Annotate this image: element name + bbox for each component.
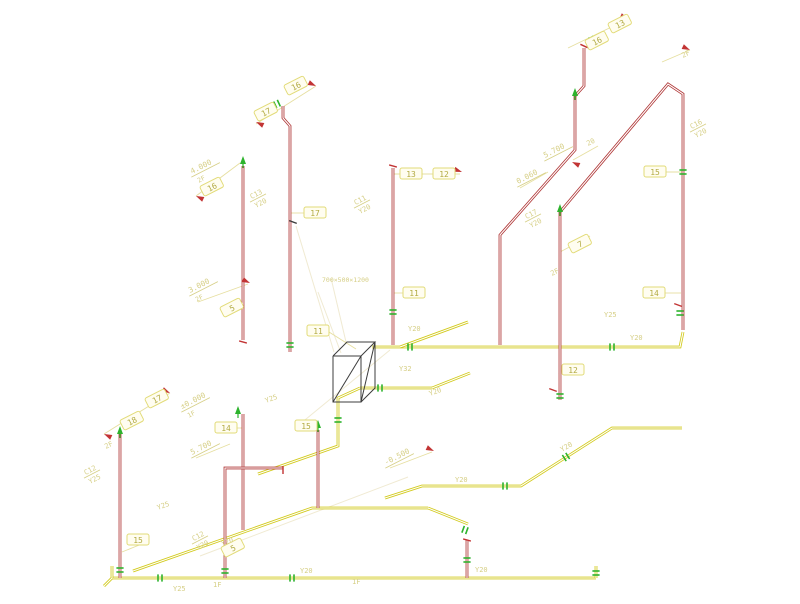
numbered-label: 18: [119, 411, 144, 431]
pipe-size-label: 20: [585, 137, 596, 148]
pipe-size-label: Y20: [455, 476, 468, 484]
pipe-size-label: Y20: [300, 567, 313, 575]
numbered-label: 17: [253, 102, 278, 122]
numbered-label: 17: [304, 207, 326, 218]
numbered-label-text: 15: [133, 536, 143, 545]
numbered-label: 7: [567, 234, 592, 254]
water-main-pipe-core: [432, 373, 470, 388]
pipe-size-label: Y20: [630, 334, 643, 342]
pipe-size-label: Y20: [408, 325, 421, 333]
elevation-mark: ±0.0001F: [177, 389, 215, 421]
end-tick: [389, 165, 397, 167]
pipe-size-label: Y25: [173, 585, 186, 593]
leader-arrow-icon: [308, 80, 317, 88]
elevation-value: 4.000: [189, 157, 214, 175]
elevation-sub: 2F: [194, 293, 205, 304]
water-main-pipe-core: [428, 508, 468, 524]
numbered-label-text: 13: [406, 170, 416, 179]
water-main-pipe-segment: [133, 508, 428, 571]
elevation-value: 0.060: [515, 167, 540, 185]
numbered-label: 5: [219, 298, 244, 318]
numbered-label: 16: [283, 76, 308, 96]
water-main-pipe-core: [133, 508, 428, 571]
riser-pipe-segment: [225, 468, 283, 578]
flow-arrow-icon: [240, 156, 246, 168]
numbered-label: 13: [400, 168, 422, 179]
piping-axonometric-svg: 700×500×12001716171613121111151471214181…: [0, 0, 800, 600]
numbered-label: 15: [127, 534, 149, 545]
end-ticks: [239, 44, 682, 541]
water-main-pipe-core: [385, 428, 682, 498]
flow-arrow-head: [240, 156, 246, 164]
numbered-label-text: 14: [649, 289, 659, 298]
numbered-label-text: 15: [301, 422, 311, 431]
valve-bar: [462, 526, 464, 533]
numbered-label: 11: [403, 287, 425, 298]
equipment-note: 700×500×1200: [322, 276, 369, 284]
riser-tag: C17Y20: [521, 207, 545, 231]
valve-icon: [462, 526, 468, 534]
water-main-pipe-segment: [385, 428, 682, 498]
pipe-size-label: Y25: [156, 500, 171, 512]
pipe-size-label: Y25: [604, 311, 617, 319]
numbered-label-text: 11: [313, 327, 323, 336]
riser-tag: C12Y25: [80, 463, 104, 487]
floor-mark: 1F: [213, 581, 221, 589]
numbered-label-text: 12: [568, 366, 578, 375]
elevation-sub: 1F: [186, 409, 197, 420]
numbered-label: 14: [215, 422, 237, 433]
numbered-label: 12: [562, 364, 584, 375]
end-tick: [239, 341, 247, 343]
leader-arrow-icon: [195, 194, 204, 202]
elevation-value: 5.700: [542, 141, 567, 159]
riser-pipe: [120, 48, 683, 578]
flow-arrow-icon: [557, 204, 563, 216]
riser-tag: C16Y20: [686, 117, 710, 141]
flow-arrow-head: [117, 426, 123, 434]
numbered-label: 15: [644, 166, 666, 177]
numbered-label-text: 15: [650, 168, 660, 177]
flow-arrow-icon: [235, 406, 241, 418]
riser-pipe-segment: [575, 48, 584, 96]
water-main-pipe-core: [104, 578, 112, 586]
floor-mark: 2F: [103, 440, 114, 451]
riser-tags: C13Y20C11Y20C17Y20C16Y20C12Y20C12Y25: [80, 117, 710, 553]
elevation-sub: 2F: [196, 174, 207, 185]
numbered-label-text: 11: [409, 289, 419, 298]
numbered-label: 11: [307, 325, 329, 336]
numbered-label-text: 12: [439, 170, 449, 179]
riser-pipe-segment: [283, 106, 290, 352]
valves: [116, 36, 686, 582]
pipe-size-label: Y20: [559, 440, 574, 453]
riser-tag: C13Y20: [246, 187, 270, 211]
pipe-size-label: Y25: [264, 393, 279, 405]
pipe-size-label: Y32: [399, 365, 412, 373]
end-tick: [463, 539, 471, 541]
numbered-label: 12: [433, 168, 455, 179]
leader-line: [573, 146, 598, 160]
riser-tag: C11Y20: [350, 193, 374, 217]
equipment-edge: [333, 342, 375, 356]
numbered-label-text: 17: [310, 209, 320, 218]
numbered-label: 14: [643, 287, 665, 298]
flow-arrow-head: [235, 406, 241, 414]
elevation-mark: 3.0002F: [185, 273, 223, 305]
elevation-value: 3.000: [187, 276, 212, 294]
floor-mark: 1F: [352, 578, 360, 586]
elevation-value: ±0.000: [179, 390, 208, 411]
valve-bar: [466, 527, 468, 534]
numbered-label-text: 14: [221, 424, 231, 433]
flow-arrow-icon: [117, 426, 123, 438]
pipe-size-label: Y20: [475, 566, 488, 574]
valve-bar: [277, 100, 280, 107]
numbered-label: 13: [607, 14, 632, 34]
faint-lines: [200, 226, 408, 556]
elevation-value: -0.500: [383, 446, 412, 467]
end-tick: [674, 304, 682, 307]
riser-pipe-core: [225, 468, 283, 578]
numbered-label: 17: [144, 389, 169, 409]
leader-arrow-icon: [103, 432, 112, 440]
elevation-value: 5.700: [189, 438, 214, 456]
leader-arrow-icon: [571, 160, 580, 168]
end-tick: [549, 389, 557, 392]
numbered-label: 15: [295, 420, 317, 431]
faint-line: [318, 292, 341, 353]
cad-canvas: 700×500×12001716171613121111151471214181…: [0, 0, 800, 600]
flow-arrow-icon: [572, 88, 578, 100]
